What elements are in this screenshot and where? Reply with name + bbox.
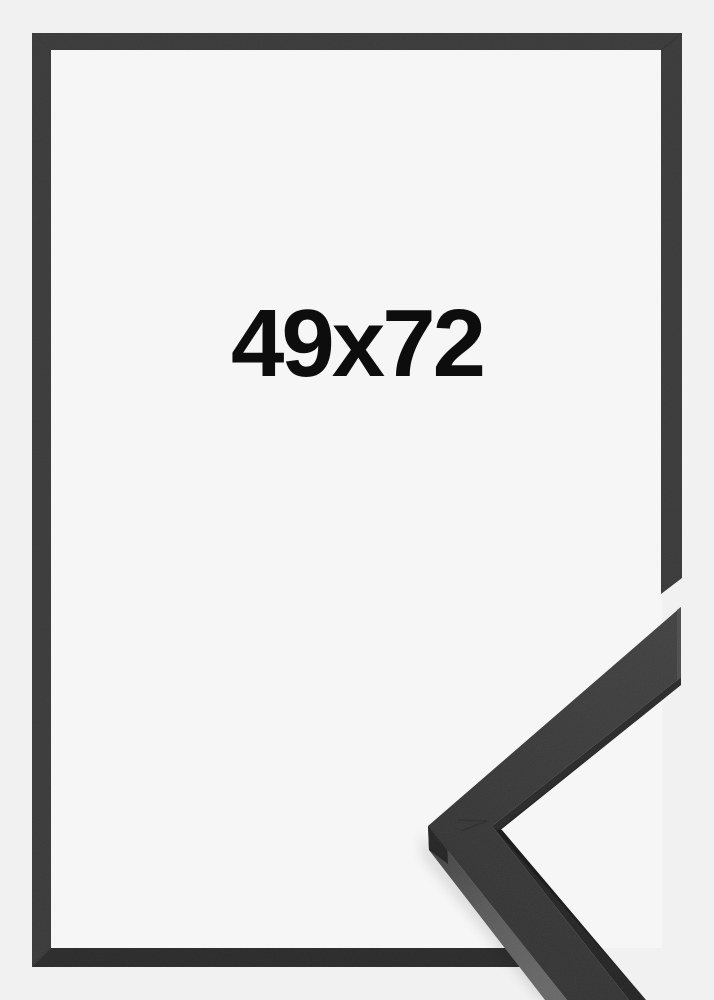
frame-size-label: 49x72 bbox=[0, 296, 714, 392]
frame-graphic bbox=[0, 0, 714, 1000]
frame-inner-area bbox=[51, 50, 662, 948]
product-photo: 49x72 bbox=[0, 0, 714, 1000]
